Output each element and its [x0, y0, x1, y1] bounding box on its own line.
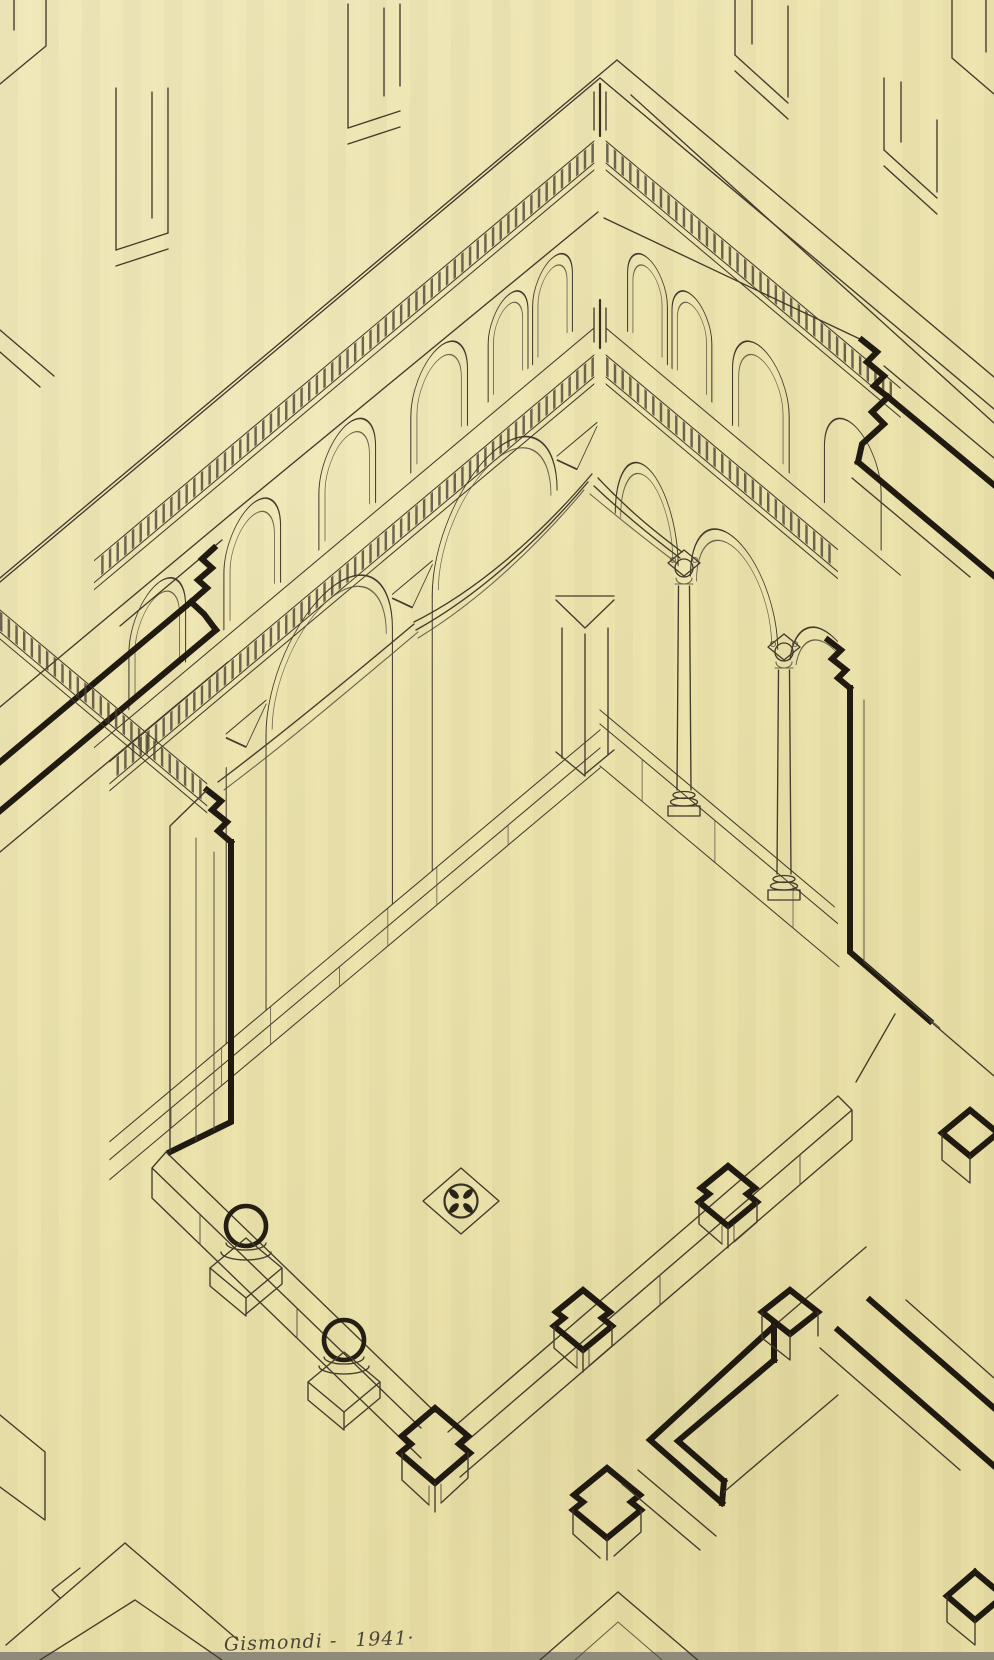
signature-name: Gismondi - [224, 1630, 338, 1656]
axonometric-architectural-drawing: Gismondi -1941· [0, 0, 994, 1660]
paper-background [0, 0, 994, 1660]
signature-date: 1941· [355, 1627, 415, 1651]
drawing-sheet: Gismondi -1941· [0, 0, 994, 1660]
scan-edge [0, 1652, 994, 1660]
